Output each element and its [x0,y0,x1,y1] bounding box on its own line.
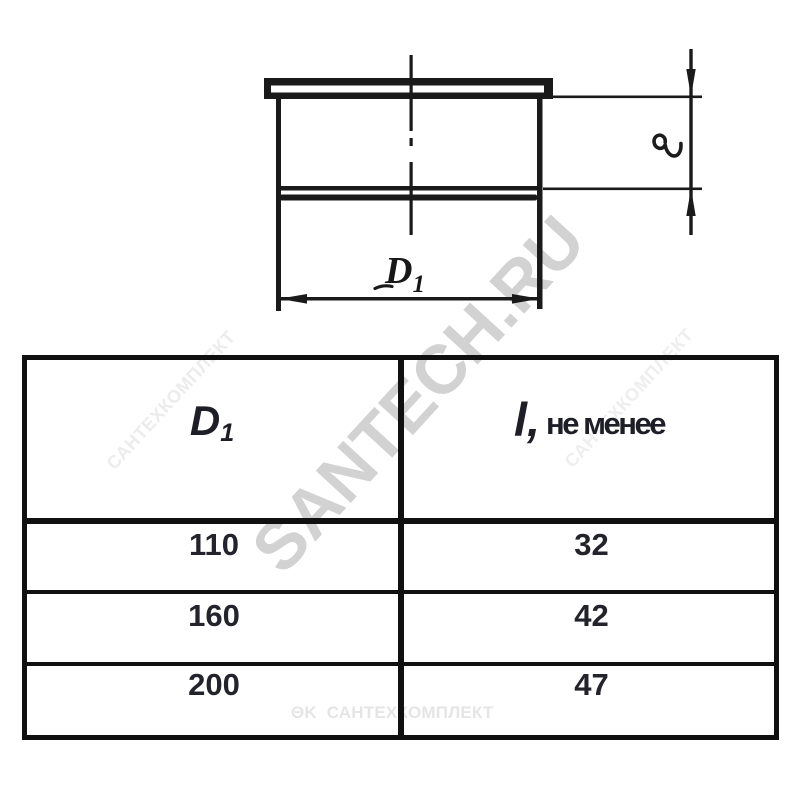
svg-text:D1: D1 [384,250,425,298]
